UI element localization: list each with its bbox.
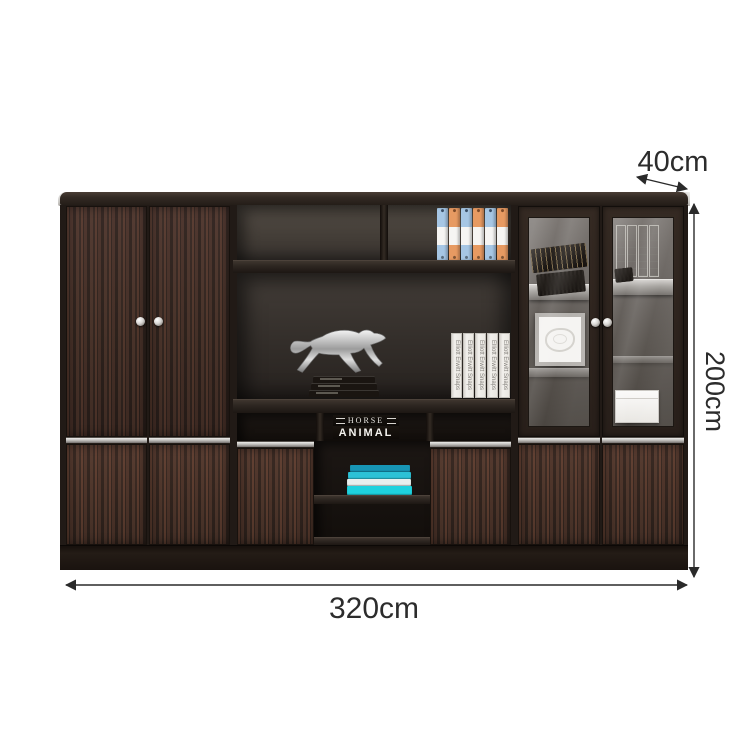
book [649,225,659,277]
product-dimension-image: Elliott Erwitt Snaps Elliott Erwitt Snap… [0,0,750,750]
door-knob [136,317,145,326]
glass-shelf [529,368,589,377]
book [627,225,637,277]
picture-sketch [545,328,575,352]
book [616,225,626,277]
width-dimension-label: 320cm [294,592,454,626]
door-knob [154,317,163,326]
white-books [616,225,668,277]
book [638,225,648,277]
framed-picture [535,313,585,366]
door-knob [603,318,612,327]
dark-decor-object [614,267,633,283]
dark-decor-object [536,270,586,297]
depth-dimension-label: 40cm [628,146,718,179]
glass-pane [612,217,674,427]
stacked-magazines [530,243,589,274]
glass-pane [528,217,590,427]
height-dimension-label: 200cm [699,351,730,432]
white-storage-box [615,390,659,423]
glass-shelf [613,356,673,363]
glass-shelf [529,284,589,300]
glass-door-right [602,206,684,437]
glass-shelf [613,279,673,295]
door-knob [591,318,600,327]
glass-door-left [518,206,600,437]
